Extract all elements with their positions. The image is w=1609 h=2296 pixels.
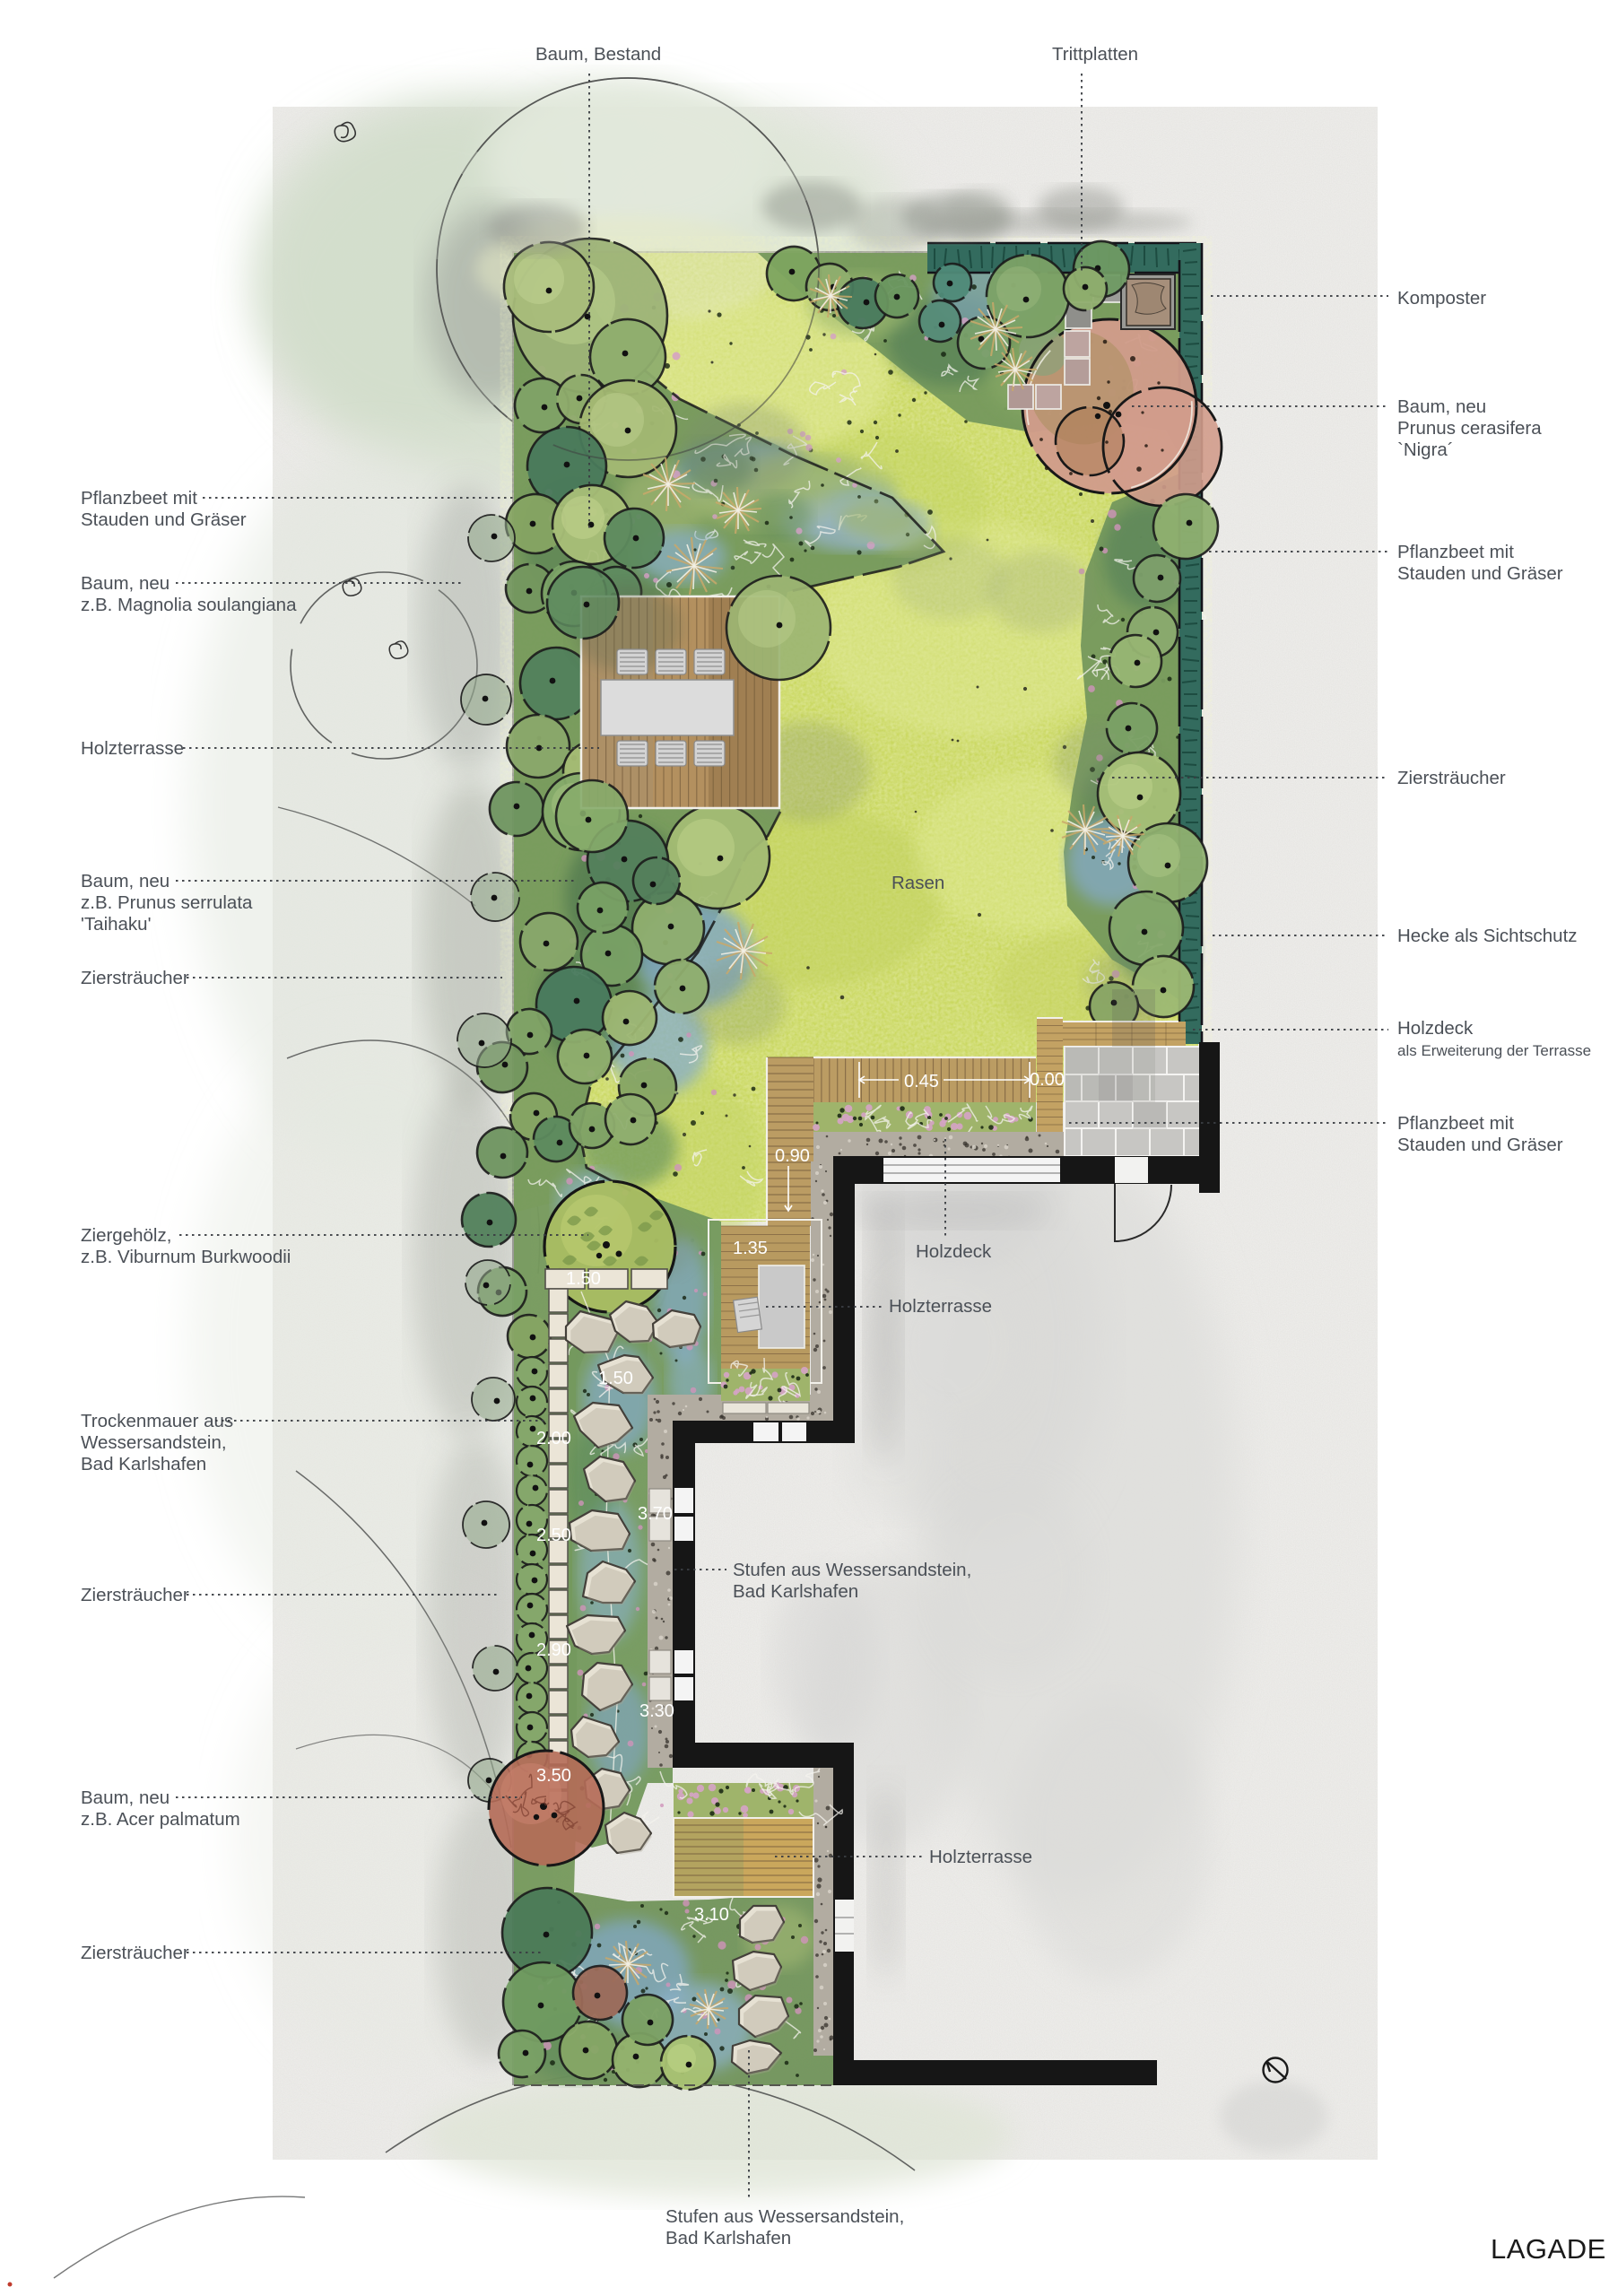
- svg-text:3.50: 3.50: [536, 1766, 571, 1786]
- svg-text:Komposter: Komposter: [1397, 288, 1486, 309]
- svg-text:z.B. Magnolia soulangiana: z.B. Magnolia soulangiana: [81, 595, 297, 615]
- svg-text:Pflanzbeet mit: Pflanzbeet mit: [1397, 542, 1514, 562]
- svg-text:0.00: 0.00: [1030, 1070, 1065, 1090]
- svg-text:Stauden und Gräser: Stauden und Gräser: [1397, 563, 1563, 584]
- svg-text:Holzterrasse: Holzterrasse: [81, 738, 184, 759]
- svg-text:Hecke als Sichtschutz: Hecke als Sichtschutz: [1397, 926, 1578, 946]
- svg-text:3.10: 3.10: [694, 1905, 729, 1925]
- svg-text:Bad Karlshafen: Bad Karlshafen: [81, 1454, 206, 1474]
- svg-text:z.B. Viburnum Burkwoodii: z.B. Viburnum Burkwoodii: [81, 1247, 291, 1267]
- svg-text:Rasen: Rasen: [891, 873, 944, 893]
- svg-text:Baum, Bestand: Baum, Bestand: [535, 44, 661, 65]
- svg-text:Baum, neu: Baum, neu: [1397, 396, 1486, 417]
- svg-text:Pflanzbeet mit: Pflanzbeet mit: [1397, 1113, 1514, 1134]
- svg-text:2.00: 2.00: [536, 1429, 571, 1448]
- svg-text:Baum, neu: Baum, neu: [81, 573, 170, 594]
- svg-text:3.30: 3.30: [639, 1701, 674, 1721]
- svg-text:Wessersandstein,: Wessersandstein,: [81, 1432, 227, 1453]
- svg-text:Prunus cerasifera: Prunus cerasifera: [1397, 418, 1542, 439]
- svg-text:Holzdeck: Holzdeck: [916, 1241, 992, 1262]
- svg-text:Holzterrasse: Holzterrasse: [889, 1296, 992, 1317]
- svg-text:Ziersträucher: Ziersträucher: [81, 1943, 189, 1963]
- svg-text:z.B. Prunus serrulata: z.B. Prunus serrulata: [81, 892, 253, 913]
- svg-text:Holzdeck: Holzdeck: [1397, 1018, 1474, 1039]
- svg-text:Stufen aus Wessersandstein,: Stufen aus Wessersandstein,: [733, 1560, 971, 1580]
- svg-text:Trittplatten: Trittplatten: [1052, 44, 1138, 65]
- svg-text:als Erweiterung der Terrasse: als Erweiterung der Terrasse: [1397, 1042, 1591, 1059]
- svg-text:0.45: 0.45: [904, 1072, 939, 1091]
- svg-text:Stufen aus Wessersandstein,: Stufen aus Wessersandstein,: [665, 2206, 904, 2227]
- svg-text:1.50: 1.50: [598, 1369, 633, 1388]
- svg-text:Ziergehölz,: Ziergehölz,: [81, 1225, 171, 1246]
- svg-text:Baum, neu: Baum, neu: [81, 1787, 170, 1808]
- svg-text:Ziersträucher: Ziersträucher: [81, 1585, 189, 1605]
- svg-text:Trockenmauer aus: Trockenmauer aus: [81, 1411, 233, 1431]
- svg-text:Ziersträucher: Ziersträucher: [81, 968, 189, 988]
- svg-text:Stauden und Gräser: Stauden und Gräser: [1397, 1135, 1563, 1155]
- svg-text:z.B. Acer palmatum: z.B. Acer palmatum: [81, 1809, 240, 1830]
- svg-text:`Nigra´: `Nigra´: [1397, 439, 1454, 460]
- svg-text:Stauden und Gräser: Stauden und Gräser: [81, 509, 247, 530]
- svg-text:Baum, neu: Baum, neu: [81, 871, 170, 891]
- svg-text:2.90: 2.90: [536, 1640, 571, 1660]
- svg-text:Holzterrasse: Holzterrasse: [929, 1847, 1032, 1867]
- svg-text:Bad Karlshafen: Bad Karlshafen: [733, 1581, 858, 1602]
- svg-text:0.90: 0.90: [775, 1146, 810, 1166]
- svg-text:1.35: 1.35: [733, 1239, 768, 1258]
- svg-text:3.70: 3.70: [638, 1504, 673, 1524]
- svg-text:2.50: 2.50: [536, 1526, 571, 1545]
- svg-text:Pflanzbeet mit: Pflanzbeet mit: [81, 488, 197, 509]
- svg-text:'Taihaku': 'Taihaku': [81, 914, 152, 935]
- svg-text:Bad Karlshafen: Bad Karlshafen: [665, 2228, 791, 2248]
- svg-text:1.50: 1.50: [566, 1269, 601, 1289]
- svg-text:Ziersträucher: Ziersträucher: [1397, 768, 1506, 788]
- svg-text:LAGADE: LAGADE: [1491, 2233, 1606, 2265]
